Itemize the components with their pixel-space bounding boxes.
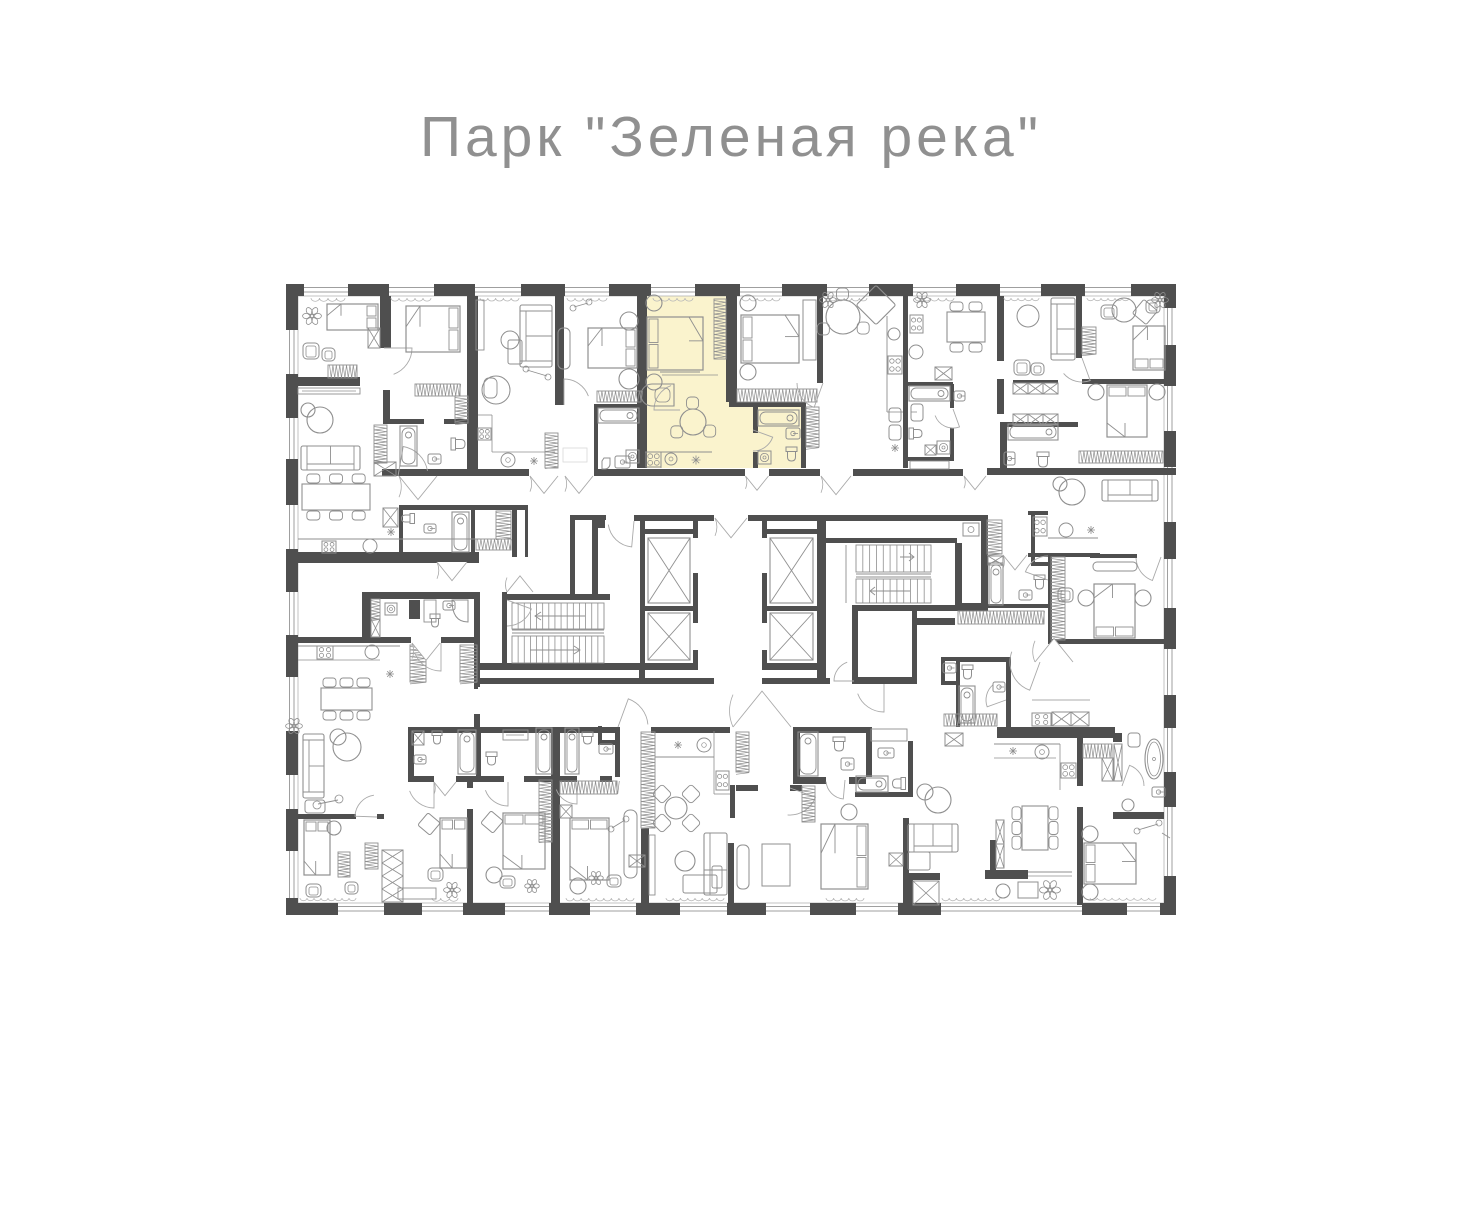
- svg-text:Парк "Зеленая река": Парк "Зеленая река": [420, 105, 1042, 169]
